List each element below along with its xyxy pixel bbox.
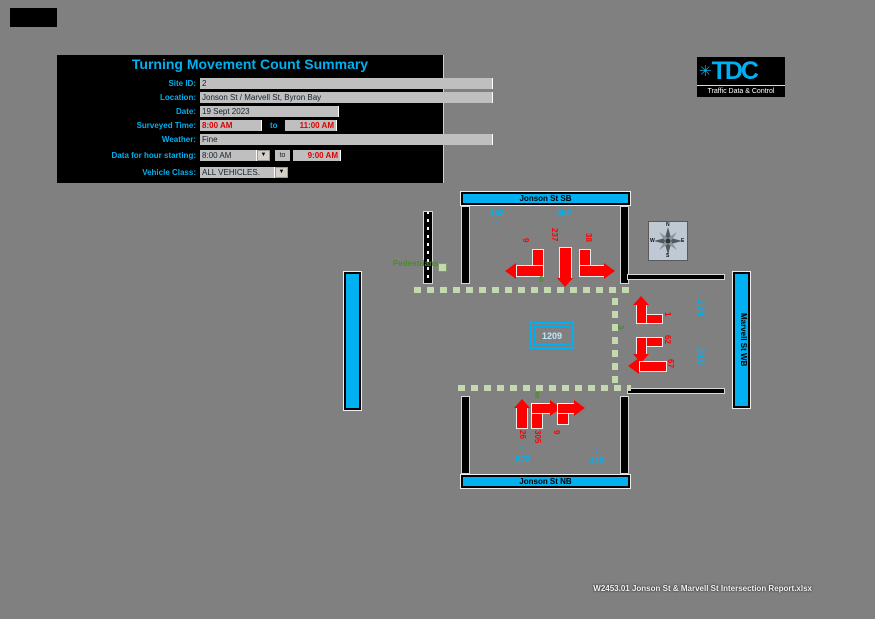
sb-right-arrowhead-icon <box>505 263 516 279</box>
compass-rose: N E S W <box>648 221 688 261</box>
total-volume-box: 1209 <box>530 322 574 349</box>
weather-label: Weather: <box>57 134 196 146</box>
crosswalk-south <box>458 385 631 391</box>
pedestrians-legend-label: Pedestrians <box>393 259 438 268</box>
vehicle-class-select[interactable]: ALL VEHICLES. <box>200 167 275 178</box>
hour-starting-select[interactable]: 8:00 AM <box>200 150 257 161</box>
compass-w: W <box>650 238 655 244</box>
road-edge-south-left <box>462 397 469 473</box>
road-median-west <box>424 212 432 283</box>
sb-through-arrow <box>560 248 571 278</box>
road-edge-north-left <box>462 207 469 283</box>
hour-starting-label: Data for hour starting: <box>57 150 196 162</box>
volume-north-out-arrow-icon: ↑ <box>486 218 508 228</box>
volume-east-in-arrow-icon: ← <box>696 289 706 299</box>
road-edge-south-right <box>621 397 628 473</box>
road-edge-north-right <box>621 207 628 283</box>
site-id-row: Site ID: 2 <box>57 78 443 90</box>
hour-ending-field[interactable]: 9:00 AM <box>293 150 341 161</box>
hour-starting-dropdown-icon[interactable]: ▼ <box>257 150 270 161</box>
sb-through-arrowhead-icon <box>557 278 573 287</box>
sb-left-count: 38 <box>584 233 593 242</box>
hour-starting-to-word: to <box>275 150 290 161</box>
vehicle-class-label: Vehicle Class: <box>57 167 196 179</box>
date-row: Date: 19 Sept 2023 <box>57 106 443 118</box>
road-edge-east-bottom <box>628 389 724 393</box>
crosswalk-north <box>414 287 631 293</box>
date-label: Date: <box>57 106 196 118</box>
logo-tagline: Traffic Data & Control <box>697 85 785 97</box>
nb-left-count: 9 <box>552 430 561 434</box>
sb-through-count: 237 <box>550 228 559 241</box>
location-field[interactable]: Jonson St / Marvell St, Byron Bay <box>200 92 493 103</box>
ped-count-south: 8 <box>535 391 539 400</box>
surveyed-time-label: Surveyed Time: <box>57 120 196 132</box>
crosswalk-east <box>612 295 618 383</box>
wb-through-arrow <box>640 362 666 371</box>
volume-east-out-arrow-icon: → <box>696 338 706 348</box>
road-edge-east-top <box>628 275 724 279</box>
wb-through-count: 67 <box>666 359 675 368</box>
nb-left-arrowhead-icon <box>574 400 585 416</box>
compass-n: N <box>666 222 670 228</box>
compass-e: E <box>681 238 684 244</box>
nb-through-count: 26 <box>518 430 527 439</box>
wb-left-count: 62 <box>663 335 672 344</box>
form-title: Turning Movement Count Summary <box>57 56 443 72</box>
logo-brand: TDC <box>712 58 757 84</box>
surveyed-time-from-field[interactable]: 8:00 AM <box>200 120 262 131</box>
wb-right-count: 1 <box>663 312 672 316</box>
weather-field[interactable]: Fine <box>200 134 493 145</box>
total-volume-value: 1209 <box>534 326 570 345</box>
worksheet: Turning Movement Count Summary Site ID: … <box>0 0 875 619</box>
sb-left-arrowhead-icon <box>604 263 615 279</box>
street-bar-west <box>344 272 361 410</box>
site-id-field[interactable]: 2 <box>200 78 493 89</box>
street-bar-east: Marvell St WB <box>733 272 750 408</box>
volume-south-in-arrow-icon: ↑ <box>512 443 534 453</box>
tdc-logo: ✳ TDC Traffic Data & Control <box>697 57 785 97</box>
street-bar-south: Jonson St NB <box>461 475 630 488</box>
location-label: Location: <box>57 92 196 104</box>
volume-south-in: 623 <box>512 454 534 464</box>
volume-south-out-arrow-icon: ↓ <box>586 445 608 455</box>
report-filename: W2453.01 Jonson St & Marvell St Intersec… <box>593 584 812 593</box>
wb-left-arrow-stem <box>637 338 646 354</box>
sb-right-count: 9 <box>521 238 530 242</box>
nb-right-arrow-foot <box>532 404 550 413</box>
date-field[interactable]: 19 Sept 2023 <box>200 106 339 117</box>
sb-left-arrow-foot <box>580 266 604 276</box>
nb-through-arrowhead-icon <box>514 399 530 408</box>
volume-north-in: 452 <box>553 208 575 218</box>
hour-starting-row: Data for hour starting: 8:00 AM ▼ to 9:0… <box>57 150 443 162</box>
site-id-label: Site ID: <box>57 78 196 90</box>
ped-count-east: 3 <box>616 325 625 329</box>
nb-right-count: 305 <box>533 430 542 443</box>
street-bar-north: Jonson St SB <box>461 192 630 205</box>
corner-box <box>10 8 57 27</box>
nb-through-arrow <box>517 408 527 428</box>
compass-s: S <box>666 253 669 259</box>
wb-right-arrowhead-icon <box>633 296 649 305</box>
wb-through-arrowhead-icon <box>628 358 639 374</box>
surveyed-time-to-field[interactable]: 11:00 AM <box>285 120 337 131</box>
surveyed-time-to-word: to <box>270 120 278 132</box>
pedestrians-legend-swatch <box>438 263 447 272</box>
wb-right-arrow-stem <box>637 305 646 323</box>
volume-east-out: →310 <box>696 338 706 366</box>
location-row: Location: Jonson St / Marvell St, Byron … <box>57 92 443 104</box>
volume-east-in: ←134 <box>696 289 706 317</box>
volume-north-out: 152 <box>486 208 508 218</box>
vehicle-class-row: Vehicle Class: ALL VEHICLES. ▼ <box>57 167 443 179</box>
junction-icon: ✳ <box>699 62 712 80</box>
nb-left-arrow-foot <box>558 404 574 413</box>
surveyed-time-row: Surveyed Time: 8:00 AM to 11:00 AM <box>57 120 443 132</box>
volume-north-in-arrow-icon: ↓ <box>553 218 575 228</box>
summary-form: Turning Movement Count Summary Site ID: … <box>57 55 444 183</box>
vehicle-class-dropdown-icon[interactable]: ▼ <box>275 167 288 178</box>
volume-south-out: 419 <box>586 456 608 466</box>
ped-count-north: 6 <box>539 275 543 284</box>
weather-row: Weather: Fine <box>57 134 443 146</box>
